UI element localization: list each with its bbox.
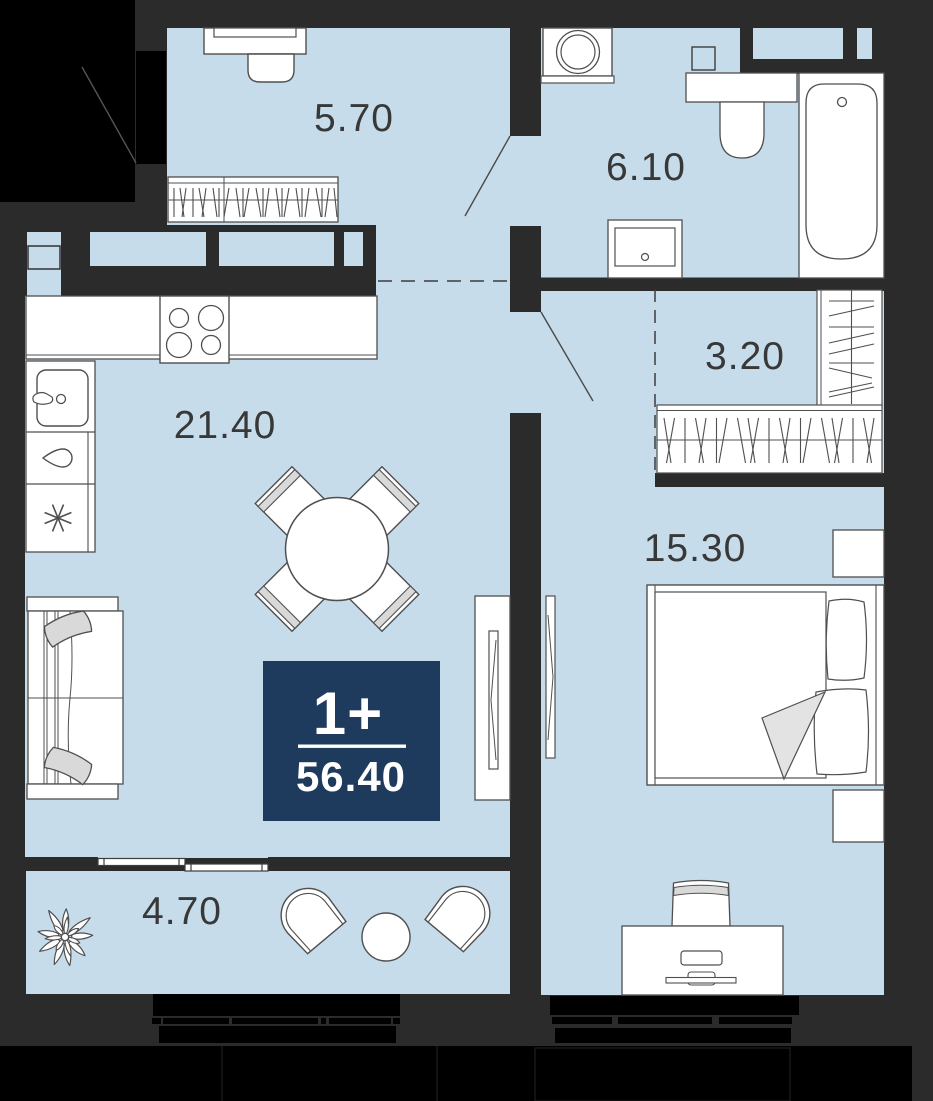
svg-text:5.70: 5.70: [314, 97, 394, 140]
svg-text:1+: 1+: [313, 680, 383, 747]
svg-text:21.40: 21.40: [174, 404, 277, 447]
svg-text:4.70: 4.70: [142, 890, 222, 933]
svg-text:56.40: 56.40: [296, 753, 406, 800]
svg-text:3.20: 3.20: [705, 335, 785, 378]
svg-text:15.30: 15.30: [644, 527, 747, 570]
svg-text:6.10: 6.10: [606, 146, 686, 189]
